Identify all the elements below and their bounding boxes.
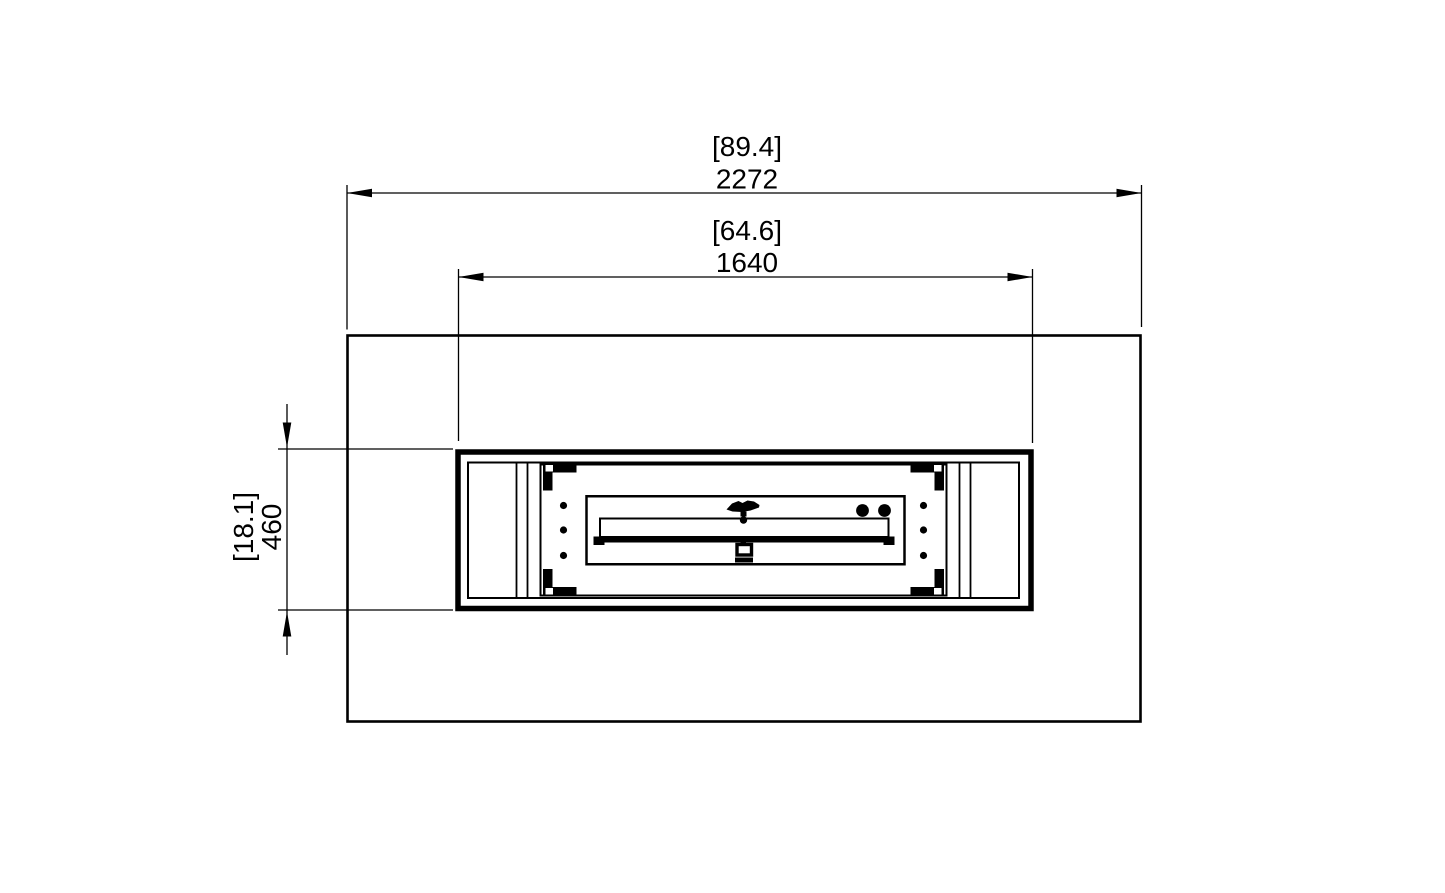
bracket-notch [934, 588, 942, 595]
valve-stem [741, 512, 747, 517]
fill-port-dot [856, 504, 869, 517]
mounting-hole-dot [920, 502, 927, 509]
arrowhead-left-icon [347, 189, 372, 198]
mounting-hole-dot [560, 526, 567, 533]
burner-frame-outline [541, 465, 947, 596]
burner-assembly [458, 452, 1031, 609]
technical-drawing-canvas: [89.4] 2272 [64.6] 1640 [18.1] 460 [0, 0, 1445, 893]
mounting-hole-dot [920, 526, 927, 533]
dimension-label-overall-width-metric: 2272 [716, 164, 778, 195]
valve-tip [740, 516, 747, 523]
bracket-notch [546, 588, 554, 595]
mounting-hole-dot [560, 502, 567, 509]
fire-table-plan-drawing: [89.4] 2272 [64.6] 1640 [18.1] 460 [0, 0, 1445, 893]
igniter-box [737, 545, 752, 556]
valve-wing-shape [727, 501, 760, 513]
bracket-notch [546, 465, 554, 472]
burner-channel-end-left [594, 537, 605, 546]
dimension-label-burner-depth-imperial: [18.1] [228, 492, 259, 562]
dimension-burner-box-depth: [18.1] 460 [228, 404, 453, 655]
mounting-hole-dot [560, 552, 567, 559]
burner-channel-end-right [884, 537, 895, 546]
arrowhead-right-icon [1117, 189, 1142, 198]
arrowhead-up-icon [283, 612, 292, 637]
valve-icon [727, 501, 760, 524]
igniter-base [735, 558, 753, 563]
arrowhead-down-icon [283, 423, 292, 448]
fill-port-dots [856, 504, 891, 517]
dimension-label-burner-depth-metric: 460 [256, 504, 287, 551]
dimension-label-burner-width-imperial: [64.6] [712, 215, 782, 246]
table-outline [348, 336, 1141, 722]
dimension-label-overall-width-imperial: [89.4] [712, 131, 782, 162]
dimension-label-burner-width-metric: 1640 [716, 247, 778, 278]
mounting-hole-dot [920, 552, 927, 559]
bracket-notch [934, 465, 942, 472]
corner-brackets [543, 463, 944, 597]
dimension-burner-box-width: [64.6] 1640 [459, 215, 1033, 443]
igniter-icon [735, 541, 753, 563]
fill-port-dot [878, 504, 891, 517]
arrowhead-left-icon [459, 273, 484, 282]
arrowhead-right-icon [1008, 273, 1033, 282]
